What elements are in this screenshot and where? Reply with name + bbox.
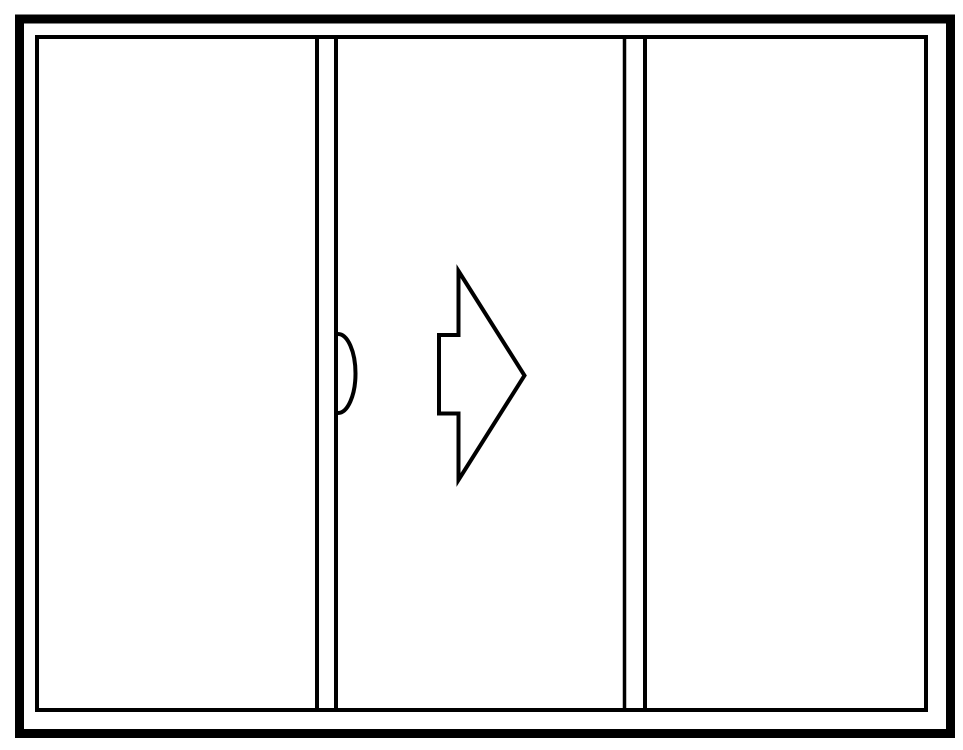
door-handle-arc [338, 334, 356, 413]
slide-direction-arrow [439, 271, 525, 480]
sliding-door-diagram [0, 0, 963, 750]
diagram-canvas [0, 0, 963, 750]
